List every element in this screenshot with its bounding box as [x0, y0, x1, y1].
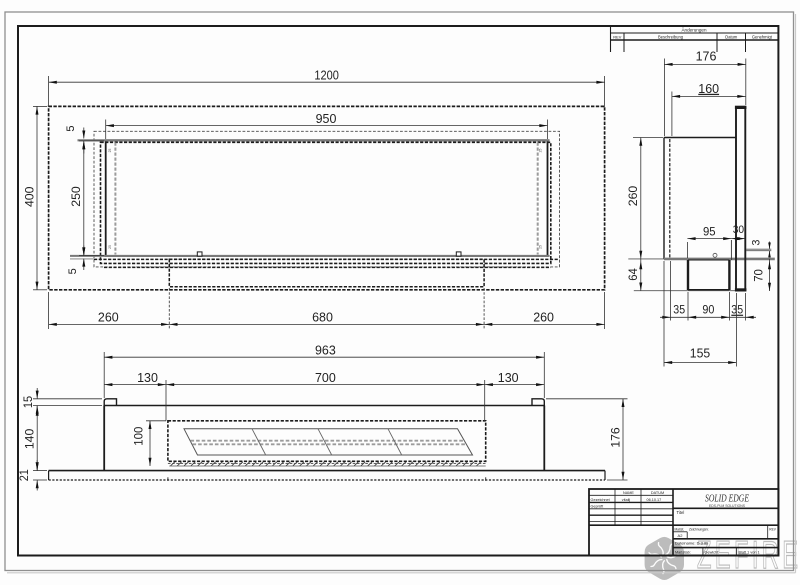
svg-text:130: 130 — [498, 370, 519, 385]
svg-text:400: 400 — [22, 186, 36, 207]
svg-text:15: 15 — [22, 396, 35, 408]
svg-text:Genehmigt: Genehmigt — [752, 34, 773, 39]
svg-text:Maßst.: Maßst. — [675, 528, 685, 532]
svg-text:Datum: Datum — [725, 34, 738, 39]
svg-text:5: 5 — [65, 125, 77, 131]
svg-text:3: 3 — [750, 240, 762, 246]
svg-text:REV: REV — [613, 34, 621, 39]
svg-text:vitalij: vitalij — [622, 498, 631, 502]
svg-text:Geprüft: Geprüft — [591, 505, 605, 509]
svg-text:Zeichnungsnr.: Zeichnungsnr. — [689, 528, 709, 532]
svg-text:130: 130 — [137, 370, 158, 385]
svg-text:30: 30 — [733, 224, 744, 236]
svg-text:25: 25 — [539, 149, 543, 153]
svg-text:140: 140 — [23, 429, 37, 450]
svg-text:70: 70 — [753, 269, 766, 282]
svg-text:Dateiname: D 3 litr: Dateiname: D 3 litr — [675, 541, 709, 546]
svg-text:176: 176 — [608, 427, 622, 447]
svg-text:700: 700 — [315, 370, 336, 385]
svg-text:1200: 1200 — [314, 67, 339, 82]
svg-text:160: 160 — [698, 81, 719, 96]
svg-text:250: 250 — [69, 186, 83, 207]
svg-text:260: 260 — [626, 186, 640, 207]
svg-text:NAME: NAME — [623, 491, 634, 495]
svg-text:06.10.17: 06.10.17 — [647, 498, 662, 502]
svg-text:963: 963 — [315, 342, 336, 357]
svg-text:Beschreibung: Beschreibung — [658, 34, 684, 39]
svg-text:950: 950 — [316, 111, 337, 126]
svg-text:64: 64 — [627, 268, 640, 281]
svg-text:95: 95 — [703, 224, 716, 238]
svg-text:Gewicht:: Gewicht: — [705, 550, 720, 554]
svg-text:260: 260 — [98, 310, 119, 325]
svg-text:25: 25 — [108, 149, 112, 153]
svg-text:35: 35 — [673, 303, 685, 317]
svg-text:EDS-PLM SOLUTIONS: EDS-PLM SOLUTIONS — [709, 503, 745, 508]
svg-text:155: 155 — [690, 347, 710, 361]
svg-text:100: 100 — [132, 427, 146, 446]
svg-text:680: 680 — [312, 310, 333, 325]
svg-text:25: 25 — [539, 245, 543, 249]
svg-text:Änderungen: Änderungen — [681, 27, 706, 33]
svg-text:Maßstab:: Maßstab: — [675, 550, 691, 554]
svg-text:25: 25 — [108, 245, 112, 249]
svg-text:REV: REV — [769, 528, 776, 532]
svg-text:35: 35 — [731, 303, 743, 317]
svg-text:260: 260 — [533, 310, 554, 325]
svg-text:176: 176 — [696, 49, 717, 64]
svg-text:A2: A2 — [678, 533, 684, 538]
svg-text:21: 21 — [18, 469, 31, 481]
svg-text:DATUM: DATUM — [651, 491, 664, 495]
svg-text:Gezeichnet: Gezeichnet — [591, 498, 611, 502]
svg-text:Blatt 1 von 1: Blatt 1 von 1 — [739, 550, 760, 554]
svg-text:Titel: Titel — [677, 510, 685, 515]
svg-text:90: 90 — [702, 303, 714, 317]
svg-text:5: 5 — [67, 268, 79, 274]
